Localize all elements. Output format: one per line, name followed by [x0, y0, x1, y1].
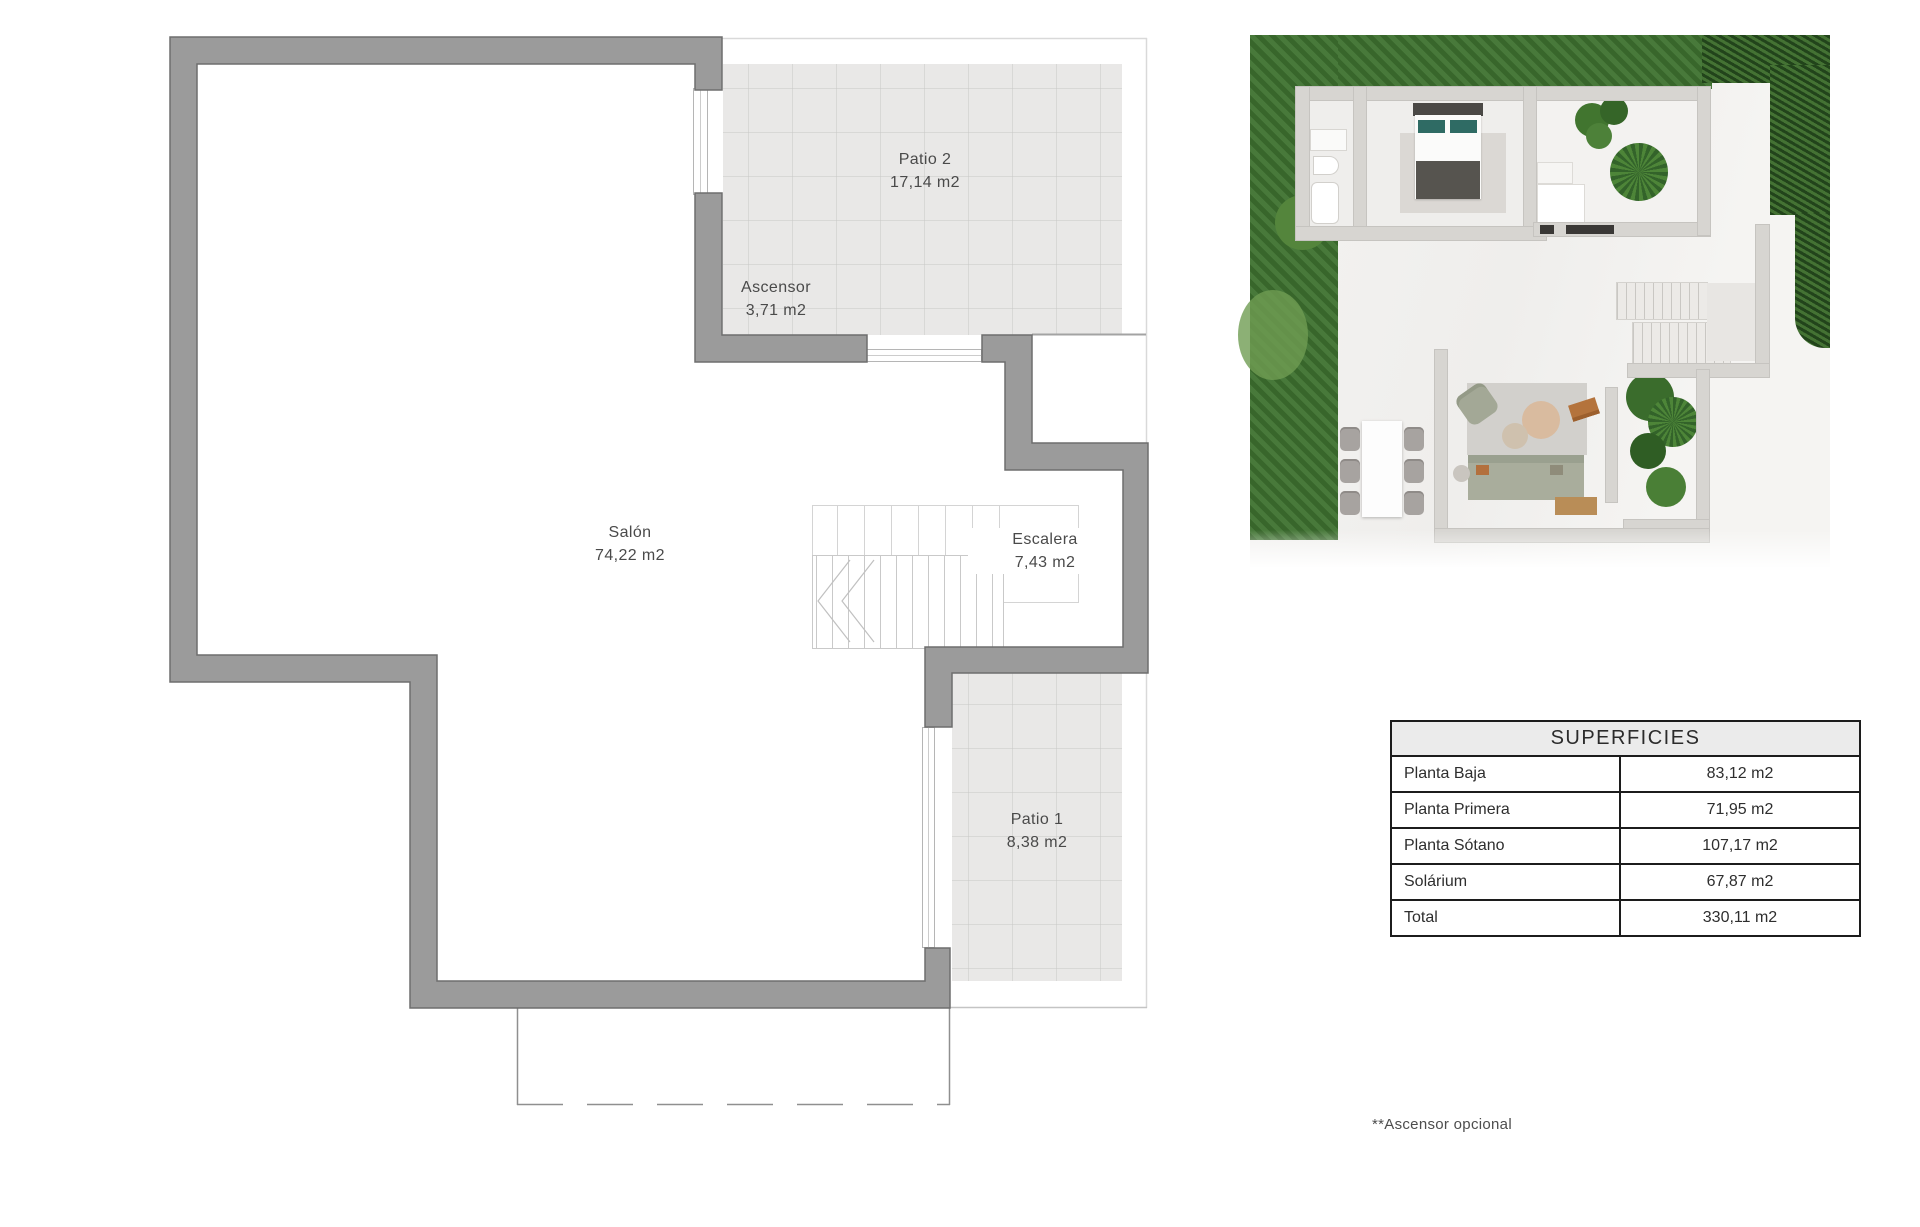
- row-label: Planta Baja: [1392, 757, 1621, 791]
- stairs-symbol: [813, 506, 1079, 649]
- render-stairs-upper-flight: [1617, 283, 1707, 319]
- render-wall: [1296, 227, 1546, 240]
- render-wall: [1534, 223, 1710, 236]
- render-bathtub: [1312, 183, 1338, 223]
- room-name: Patio 2: [825, 148, 1025, 171]
- render-bed-pillow: [1418, 120, 1445, 133]
- row-value: 71,95 m2: [1621, 793, 1859, 827]
- render-bush-left: [1238, 290, 1308, 380]
- render-wood-floor-strip: [1555, 497, 1597, 515]
- render-stairs-landing: [1707, 283, 1755, 361]
- render-dining-chair: [1404, 491, 1424, 515]
- render-wall: [1697, 370, 1709, 533]
- row-value: 330,11 m2: [1621, 901, 1859, 935]
- row-label: Solárium: [1392, 865, 1621, 899]
- window-top-middle: [866, 350, 982, 362]
- row-label: Total: [1392, 901, 1621, 935]
- render-door-mark: [1566, 225, 1614, 234]
- render-stool: [1453, 465, 1470, 482]
- render-wall: [1756, 225, 1769, 377]
- render-plant: [1586, 123, 1612, 149]
- row-value: 67,87 m2: [1621, 865, 1859, 899]
- render-dining-table: [1362, 421, 1402, 517]
- render-dining-chair: [1404, 427, 1424, 451]
- render-wall: [1296, 87, 1309, 239]
- render-court-plant: [1630, 433, 1666, 469]
- table-row: Planta Baja 83,12 m2: [1392, 757, 1859, 793]
- render-cabinet: [1538, 185, 1584, 223]
- render-dining-chair: [1340, 459, 1360, 483]
- footnote: **Ascensor opcional: [1372, 1116, 1512, 1133]
- floor-plan-drawing: [0, 0, 1220, 1222]
- render-grass-top: [1292, 35, 1712, 89]
- table-title: SUPERFICIES: [1392, 722, 1859, 757]
- floor-plan: Patio 2 17,14 m2 Ascensor 3,71 m2 Salón …: [0, 0, 1220, 1222]
- room-name: Salón: [530, 521, 730, 544]
- render-dining-chair: [1340, 491, 1360, 515]
- render-wall: [1606, 388, 1617, 502]
- render-toilet: [1314, 157, 1338, 174]
- row-value: 107,17 m2: [1621, 829, 1859, 863]
- render-plant: [1600, 97, 1628, 125]
- room-label-ascensor: Ascensor 3,71 m2: [676, 276, 876, 322]
- room-label-patio1: Patio 1 8,38 m2: [937, 808, 1137, 854]
- render-3d-top-view: [1250, 35, 1830, 575]
- room-area: 17,14 m2: [825, 171, 1025, 194]
- render-sink-counter: [1311, 130, 1346, 150]
- render-hedge-right-taper: [1795, 213, 1830, 348]
- room-name: Patio 1: [937, 808, 1137, 831]
- room-label-salon: Salón 74,22 m2: [530, 521, 730, 567]
- window-left: [694, 88, 708, 195]
- render-hedge-right: [1770, 65, 1830, 215]
- table-row: Planta Sótano 107,17 m2: [1392, 829, 1859, 865]
- room-area: 7,43 m2: [972, 551, 1118, 574]
- render-side-table: [1502, 423, 1528, 449]
- render-palm-plant: [1610, 143, 1668, 201]
- render-dining-chair: [1404, 459, 1424, 483]
- render-sofa-pillow: [1476, 465, 1489, 475]
- row-value: 83,12 m2: [1621, 757, 1859, 791]
- render-bed-pillow: [1450, 120, 1477, 133]
- row-label: Planta Sótano: [1392, 829, 1621, 863]
- room-label-escalera: Escalera 7,43 m2: [968, 528, 1122, 574]
- render-wall: [1524, 87, 1536, 239]
- table-row: Solárium 67,87 m2: [1392, 865, 1859, 901]
- row-label: Planta Primera: [1392, 793, 1621, 827]
- render-wall: [1435, 350, 1447, 532]
- room-area: 74,22 m2: [530, 544, 730, 567]
- room-area: 8,38 m2: [937, 831, 1137, 854]
- render-wall: [1354, 87, 1366, 239]
- render-court-plant: [1646, 467, 1686, 507]
- render-sofa: [1468, 455, 1584, 500]
- room-name: Ascensor: [676, 276, 876, 299]
- superficies-table: SUPERFICIES Planta Baja 83,12 m2 Planta …: [1390, 720, 1861, 937]
- porch-outline: [517, 1008, 950, 1105]
- render-door-mark: [1540, 225, 1554, 234]
- table-row: Total 330,11 m2: [1392, 901, 1859, 935]
- room-area: 3,71 m2: [676, 299, 876, 322]
- render-wall: [1698, 87, 1710, 235]
- window-patio1: [923, 727, 935, 948]
- table-row: Planta Primera 71,95 m2: [1392, 793, 1859, 829]
- render-dining-chair: [1340, 427, 1360, 451]
- render-bed-blanket: [1416, 161, 1480, 199]
- room-label-patio2: Patio 2 17,14 m2: [825, 148, 1025, 194]
- room-name: Escalera: [972, 528, 1118, 551]
- render-bottom-fade: [1250, 530, 1830, 575]
- render-cabinet: [1538, 163, 1572, 183]
- render-sofa-pillow: [1550, 465, 1563, 475]
